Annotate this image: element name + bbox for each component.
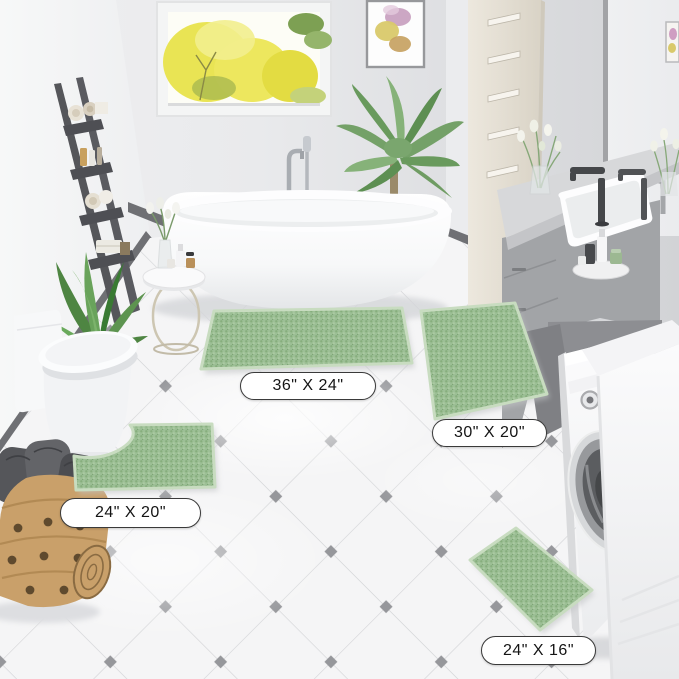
bathroom-scene-illustration <box>0 0 679 679</box>
bathroom-product-photo: 36" X 24" 30" X 20" 24" X 20" 24" X 16" <box>0 0 679 679</box>
size-label-30x20: 30" X 20" <box>432 419 547 447</box>
window-view-trees <box>163 13 332 105</box>
mirror-reflection-art <box>666 22 679 62</box>
rug-36x24 <box>201 308 415 374</box>
size-label-36x24: 36" X 24" <box>240 372 376 400</box>
window <box>157 2 332 116</box>
wall-art-frame <box>367 1 424 67</box>
size-label-24x20: 24" X 20" <box>60 498 201 528</box>
size-label-24x16: 24" X 16" <box>481 636 596 665</box>
